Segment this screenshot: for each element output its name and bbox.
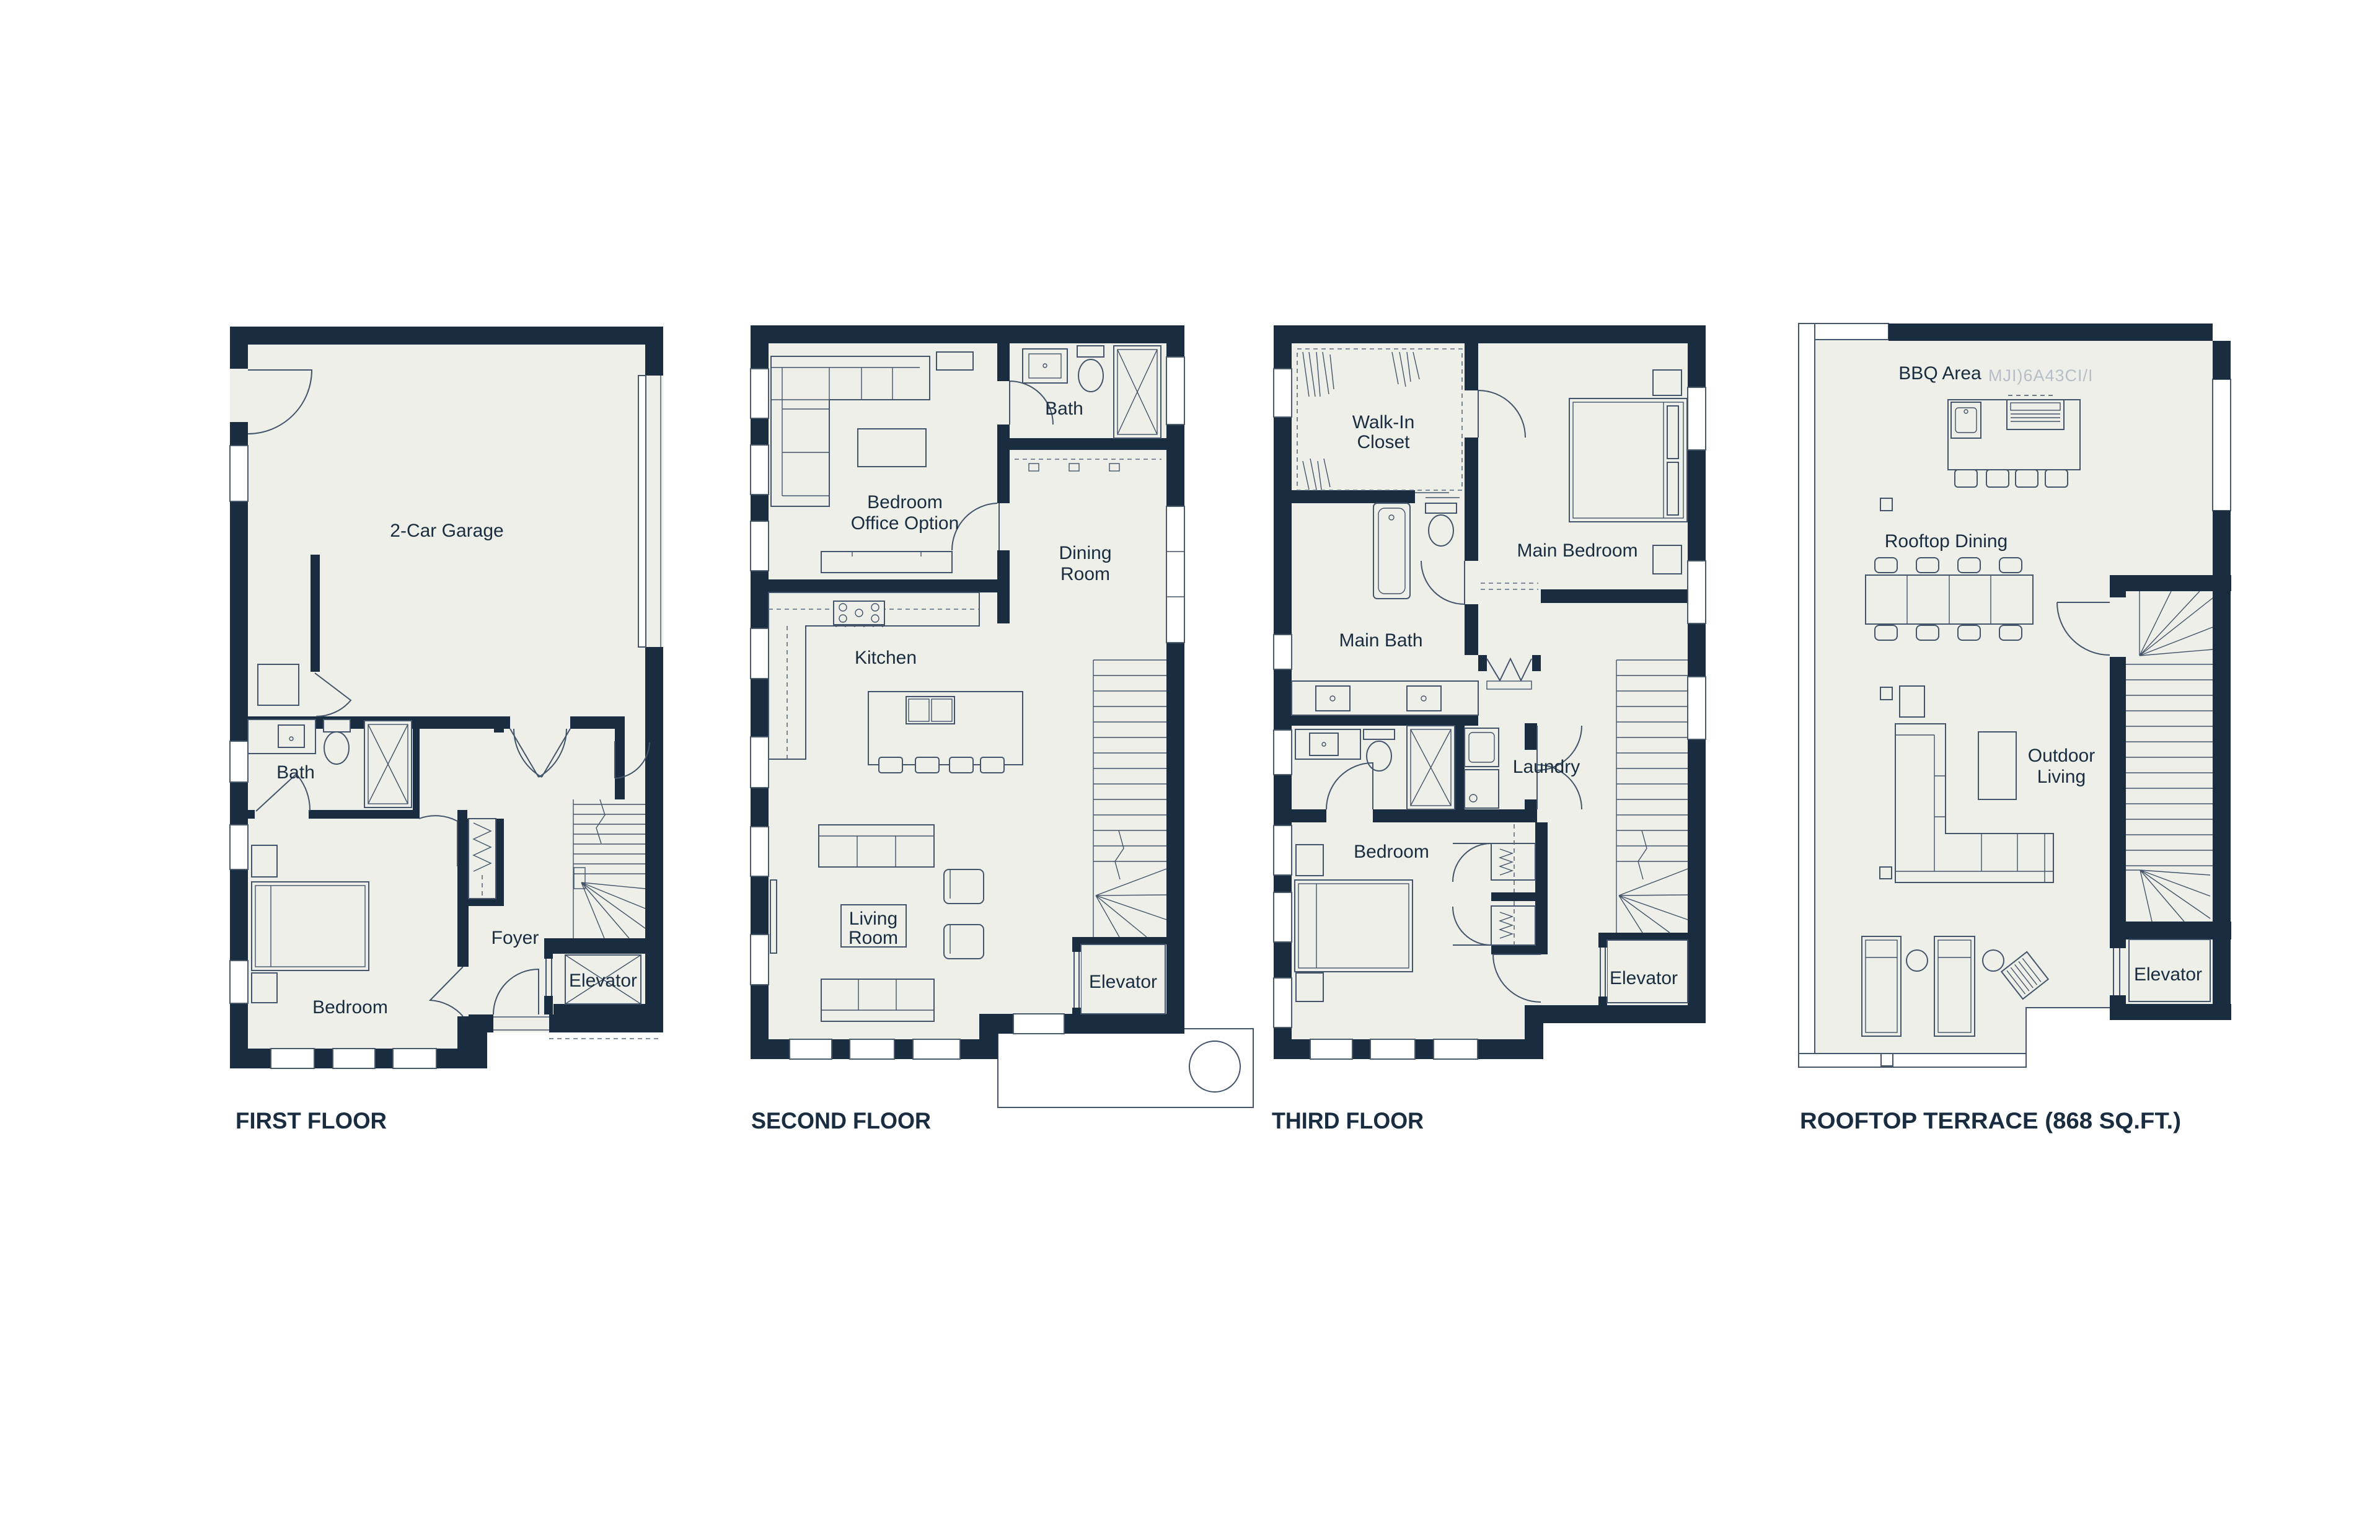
- svg-text:THIRD FLOOR: THIRD FLOOR: [1272, 1108, 1424, 1133]
- svg-text:Elevator: Elevator: [1610, 968, 1678, 988]
- svg-text:Laundry: Laundry: [1513, 757, 1580, 777]
- svg-text:2-Car Garage: 2-Car Garage: [390, 521, 503, 541]
- svg-text:Kitchen: Kitchen: [855, 648, 917, 668]
- svg-text:Bedroom: Bedroom: [867, 492, 943, 513]
- svg-text:Closet: Closet: [1357, 432, 1410, 452]
- svg-text:Bath: Bath: [1045, 398, 1083, 419]
- svg-text:Outdoor: Outdoor: [2028, 746, 2095, 766]
- svg-text:Bedroom: Bedroom: [1354, 842, 1429, 862]
- svg-text:BBQ Area: BBQ Area: [1898, 363, 1981, 384]
- svg-text:Bedroom: Bedroom: [312, 997, 388, 1018]
- svg-text:Living: Living: [849, 909, 897, 929]
- svg-text:Room: Room: [1060, 564, 1110, 584]
- svg-text:Elevator: Elevator: [2134, 964, 2202, 985]
- svg-text:MJI)6A43CI/I: MJI)6A43CI/I: [1988, 366, 2094, 385]
- svg-text:Bath: Bath: [276, 762, 315, 783]
- svg-text:Main Bedroom: Main Bedroom: [1517, 540, 1637, 561]
- svg-text:SECOND FLOOR: SECOND FLOOR: [751, 1108, 931, 1133]
- svg-text:Dining: Dining: [1059, 543, 1111, 563]
- svg-text:Room: Room: [848, 928, 898, 948]
- svg-text:Office Option: Office Option: [851, 513, 959, 534]
- svg-text:Elevator: Elevator: [569, 970, 637, 991]
- svg-text:Main Bath: Main Bath: [1339, 630, 1422, 651]
- svg-text:Rooftop Dining: Rooftop Dining: [1885, 531, 2008, 552]
- svg-text:ROOFTOP TERRACE (868 SQ.FT.): ROOFTOP TERRACE (868 SQ.FT.): [1800, 1108, 2181, 1133]
- svg-text:FIRST FLOOR: FIRST FLOOR: [236, 1108, 387, 1133]
- svg-text:Living: Living: [2037, 767, 2086, 787]
- svg-text:Walk-In: Walk-In: [1352, 412, 1415, 433]
- svg-text:Elevator: Elevator: [1089, 972, 1157, 992]
- svg-text:Foyer: Foyer: [491, 928, 539, 948]
